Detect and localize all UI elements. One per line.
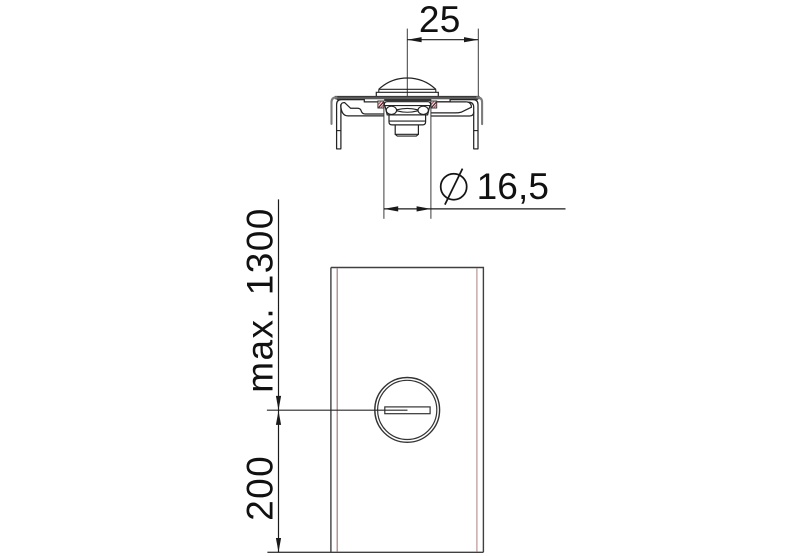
svg-text:200: 200 [240, 455, 281, 521]
svg-text:max. 1300: max. 1300 [240, 207, 281, 392]
svg-text:16,5: 16,5 [477, 166, 549, 207]
svg-text:25: 25 [419, 0, 461, 40]
